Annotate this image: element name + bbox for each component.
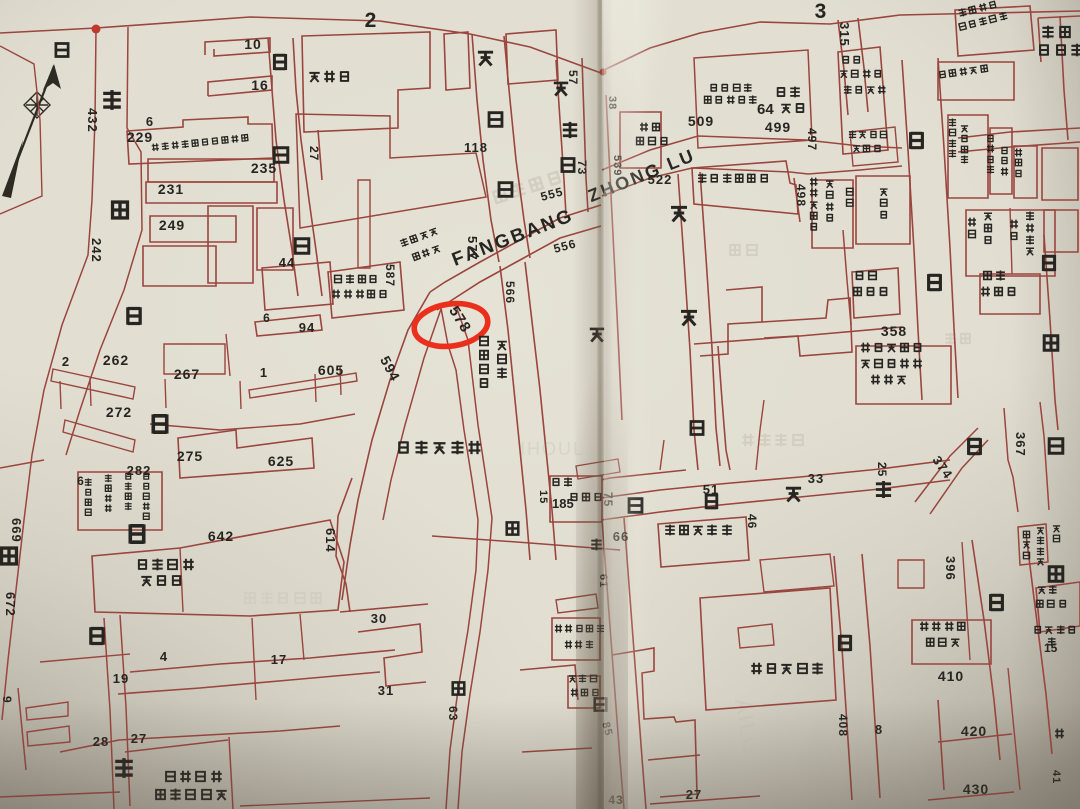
svg-text:272: 272 [106, 404, 132, 420]
svg-text:275: 275 [177, 448, 203, 464]
svg-text:410: 410 [938, 668, 964, 684]
svg-text:2: 2 [365, 9, 378, 32]
svg-text:46: 46 [745, 514, 759, 529]
svg-text:6: 6 [263, 311, 271, 325]
svg-text:358: 358 [881, 323, 907, 339]
svg-text:669: 669 [9, 518, 24, 543]
svg-text:118: 118 [464, 140, 488, 155]
svg-text:15: 15 [1044, 641, 1058, 655]
svg-text:242: 242 [89, 238, 104, 263]
svg-text:625: 625 [268, 453, 294, 469]
svg-text:315: 315 [837, 22, 852, 47]
svg-text:497: 497 [805, 128, 819, 151]
svg-text:30: 30 [371, 611, 387, 626]
svg-text:51: 51 [703, 482, 719, 497]
svg-text:587: 587 [383, 264, 397, 287]
svg-text:249: 249 [159, 217, 185, 233]
svg-text:64: 64 [757, 101, 774, 118]
svg-text:33: 33 [808, 471, 824, 486]
svg-text:44: 44 [279, 255, 295, 270]
svg-text:396: 396 [943, 556, 958, 581]
svg-text:16: 16 [251, 77, 269, 93]
svg-text:25: 25 [875, 462, 889, 477]
svg-text:15: 15 [537, 490, 549, 504]
svg-text:229: 229 [127, 129, 153, 145]
svg-text:614: 614 [323, 528, 338, 553]
svg-text:605: 605 [318, 362, 344, 378]
svg-text:10: 10 [244, 36, 262, 52]
svg-text:1: 1 [260, 365, 268, 380]
svg-text:642: 642 [208, 528, 234, 544]
svg-text:31: 31 [378, 683, 394, 698]
svg-text:672: 672 [3, 592, 18, 617]
svg-text:267: 267 [174, 366, 200, 382]
svg-text:3: 3 [815, 0, 828, 23]
svg-text:432: 432 [85, 108, 100, 133]
svg-text:566: 566 [503, 281, 517, 304]
svg-text:367: 367 [1013, 432, 1028, 457]
svg-text:282: 282 [127, 463, 152, 478]
svg-text:6: 6 [146, 114, 154, 129]
svg-text:498: 498 [794, 184, 808, 207]
svg-text:235: 235 [251, 160, 277, 176]
svg-text:27: 27 [307, 146, 321, 161]
svg-text:4: 4 [160, 649, 168, 664]
svg-text:94: 94 [299, 320, 315, 335]
svg-text:577: 577 [465, 236, 480, 261]
svg-text:17: 17 [271, 652, 287, 667]
svg-text:6: 6 [77, 474, 85, 488]
svg-text:231: 231 [158, 181, 184, 197]
svg-text:2: 2 [62, 354, 70, 369]
svg-text:19: 19 [113, 671, 129, 686]
svg-text:509: 509 [688, 113, 714, 129]
svg-text:499: 499 [765, 119, 791, 135]
svg-text:185: 185 [552, 496, 574, 511]
svg-text:262: 262 [103, 352, 129, 368]
